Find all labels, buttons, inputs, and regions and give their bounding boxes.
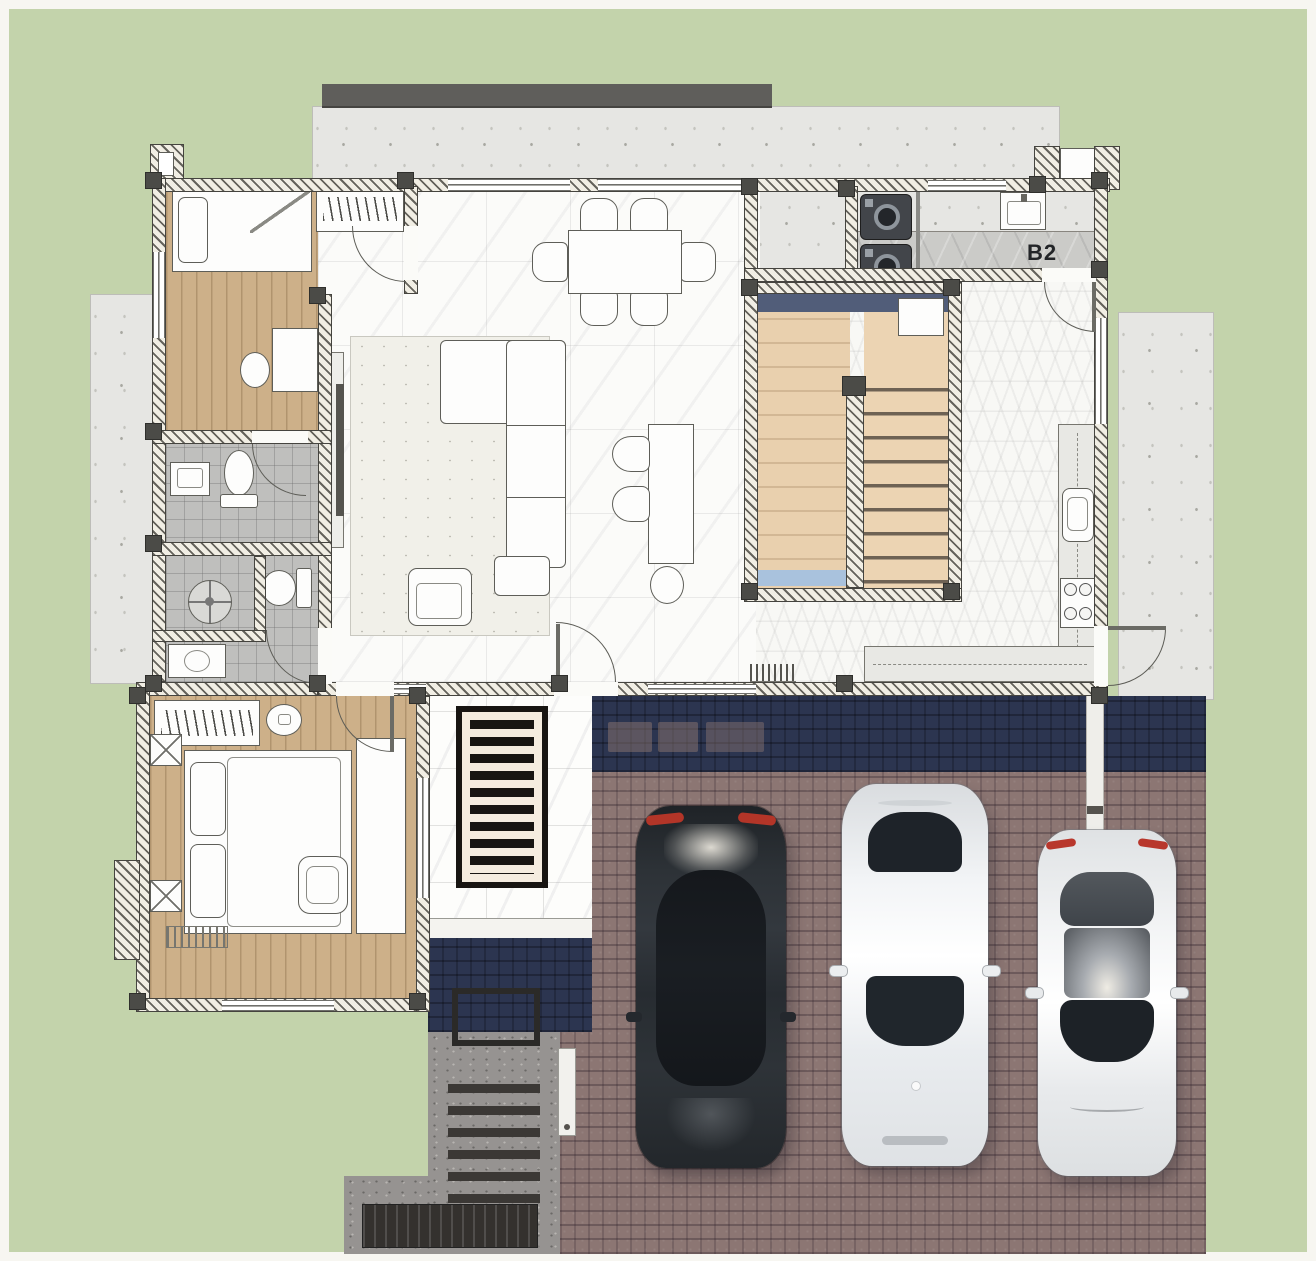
column-post xyxy=(145,423,162,440)
column-post xyxy=(838,180,855,197)
kitchen-sink xyxy=(1062,488,1094,542)
bed2-pillow xyxy=(190,844,226,918)
column-post xyxy=(129,687,146,704)
hood-line xyxy=(1070,1102,1144,1112)
door-gap-kitchen-side xyxy=(1094,626,1108,686)
rear-window xyxy=(868,812,962,872)
desk-chair xyxy=(612,436,650,472)
door-gap-utility xyxy=(1042,268,1096,282)
column-post xyxy=(741,583,758,600)
side-mirror xyxy=(830,966,847,976)
desk-chair xyxy=(612,486,650,522)
stair-newel-post xyxy=(842,376,866,396)
side-mirror xyxy=(1026,988,1043,998)
stair-tread-lines xyxy=(864,388,948,588)
door-leaf-kitchen-side xyxy=(1108,626,1166,630)
column-post xyxy=(1091,172,1108,189)
roof-sheen xyxy=(1064,928,1150,998)
column-post xyxy=(397,172,414,189)
column-post xyxy=(1091,261,1108,278)
column-post xyxy=(309,287,326,304)
dining-table xyxy=(568,230,682,294)
dining-chair xyxy=(630,198,668,234)
bed2-pillow xyxy=(190,762,226,836)
dining-chair xyxy=(630,290,668,326)
roof-edge xyxy=(322,84,772,108)
dining-chair xyxy=(532,242,568,282)
counter-dash-line xyxy=(873,664,1087,665)
car-white-sedan xyxy=(842,784,988,1166)
sink-basin xyxy=(177,468,203,488)
utility-partition xyxy=(916,186,920,268)
nightstand xyxy=(150,880,182,912)
vanity2 xyxy=(168,644,226,678)
kitchen-sink-basin xyxy=(1067,497,1088,531)
dining-chair xyxy=(580,198,618,234)
toilet2-bowl xyxy=(262,570,296,606)
sofa-right-section xyxy=(506,340,566,568)
column-post xyxy=(145,172,162,189)
planter-outline xyxy=(452,988,540,1046)
vanity2-sink xyxy=(184,650,210,672)
utility-sink-basin xyxy=(1007,201,1041,225)
side-mirror xyxy=(983,966,1000,976)
hood-sheen xyxy=(666,1098,756,1152)
ottoman-inner-line xyxy=(416,583,462,619)
door-gap-bedroom1 xyxy=(404,226,418,280)
walkway-post-dot xyxy=(564,1124,570,1130)
stove-burner xyxy=(1079,607,1092,620)
sofa-chaise xyxy=(494,556,550,596)
wall-bedroom2-left xyxy=(136,682,150,1012)
window xyxy=(222,1000,334,1011)
column-post xyxy=(409,993,426,1010)
entry-shoe-grate xyxy=(750,664,796,682)
wall-stair-right xyxy=(948,282,962,600)
column-post xyxy=(1029,176,1046,193)
car-white-hatchback xyxy=(1038,830,1176,1176)
stove-burner xyxy=(1079,583,1092,596)
kitchen-counter-bottom xyxy=(864,646,1096,682)
walkway-post xyxy=(558,1048,576,1136)
column-post xyxy=(741,178,758,195)
door-gap-bathroom1 xyxy=(252,431,308,443)
utility-sink-tap xyxy=(1021,194,1027,202)
toilet1-bowl xyxy=(224,450,254,496)
window xyxy=(598,179,750,191)
window xyxy=(648,684,756,694)
armchair-seat-line xyxy=(306,866,339,904)
door-leaf-bedroom2 xyxy=(390,696,394,752)
gas-stove xyxy=(1060,578,1096,628)
stove-burner xyxy=(1064,607,1077,620)
side-mirror xyxy=(1171,988,1188,998)
shadow-light-patch xyxy=(608,722,652,752)
house-shadow-band xyxy=(560,696,1206,772)
column-post xyxy=(836,675,853,692)
deck-column xyxy=(756,186,846,268)
ottoman-armchair xyxy=(408,568,472,626)
walkway-steps xyxy=(448,1084,540,1210)
shadow-light-patch xyxy=(706,722,764,752)
drain-center xyxy=(205,597,214,606)
counter-dash-line xyxy=(1077,433,1078,673)
window xyxy=(1095,318,1107,424)
column-post xyxy=(943,583,960,600)
shower-drain xyxy=(188,580,232,624)
desk xyxy=(648,424,694,564)
tv xyxy=(336,384,344,516)
window xyxy=(417,778,429,898)
hood-emblem xyxy=(912,1082,920,1090)
column-post xyxy=(145,535,162,552)
wall-bath1-bath2 xyxy=(152,542,332,556)
wardrobe-hanger-strokes xyxy=(161,710,253,736)
kitchen-counter-right xyxy=(1058,424,1096,682)
column-post xyxy=(943,279,960,296)
dining-chair xyxy=(580,290,618,326)
stove-burner xyxy=(1064,583,1077,596)
trunk-sheen xyxy=(664,824,758,876)
wall-bedroom2-stub xyxy=(114,860,140,960)
toilet1-tank xyxy=(220,494,258,508)
stair-left-flight xyxy=(758,294,850,588)
floor-plan-canvas: B2 xyxy=(0,0,1316,1261)
trunk-line xyxy=(878,800,952,806)
door-leaf-utility xyxy=(1092,282,1096,332)
door-gap-bedroom2 xyxy=(336,682,394,696)
column-post xyxy=(129,993,146,1010)
porch-step-edge xyxy=(428,918,592,938)
washing-machine xyxy=(860,194,912,240)
wall-stair-bottom xyxy=(744,588,962,602)
washer-door xyxy=(874,204,900,230)
entry-doormat xyxy=(456,706,548,888)
hallway-stool xyxy=(240,352,270,388)
stair-bottom-strip xyxy=(758,570,850,586)
nightstand xyxy=(150,734,182,766)
column-post xyxy=(1091,687,1108,704)
column-post xyxy=(551,675,568,692)
wall-bedroom2-top xyxy=(136,682,318,696)
washer-panel xyxy=(865,199,873,207)
wall-stair-top xyxy=(744,282,962,294)
stair-mid-wall xyxy=(846,382,864,588)
windshield xyxy=(866,976,964,1046)
rear-glass xyxy=(1060,872,1154,926)
utility-sink xyxy=(1000,192,1046,230)
column-post xyxy=(309,675,326,692)
window xyxy=(928,180,1006,191)
column-post xyxy=(741,279,758,296)
bedroom2-armchair xyxy=(298,856,348,914)
bedroom2-stool xyxy=(266,704,302,736)
side-mirror xyxy=(626,1012,642,1022)
bathroom1-sink xyxy=(170,462,210,496)
wall-bath2-inner-h xyxy=(152,630,266,642)
door-leaf-entry xyxy=(556,624,560,682)
hallway-dresser xyxy=(272,328,318,392)
room-label-b2: B2 xyxy=(1014,240,1070,268)
front-grille xyxy=(882,1136,948,1145)
bedroom2-bench xyxy=(356,738,406,934)
closet-hanger-strokes xyxy=(323,197,397,221)
window xyxy=(153,252,165,338)
upper-deck xyxy=(312,106,1060,180)
walkway-drain-grate xyxy=(362,1204,538,1248)
wall-stair-left xyxy=(744,282,758,600)
column-post xyxy=(145,675,162,692)
washer-panel xyxy=(865,249,873,257)
shadow-light-patch xyxy=(658,722,698,752)
window xyxy=(448,179,570,191)
wall-bath2-inner-v xyxy=(254,556,266,640)
column-post xyxy=(409,687,426,704)
wall-hall-living xyxy=(318,294,332,682)
dining-chair xyxy=(680,242,716,282)
car-dark-sedan xyxy=(636,806,786,1168)
side-mirror xyxy=(780,1012,796,1022)
bed1-sheet-fold xyxy=(250,191,310,233)
bed-foot-rug xyxy=(166,926,228,948)
glass-canopy xyxy=(656,870,766,1086)
doormat-bars xyxy=(470,720,534,874)
stool-detail xyxy=(278,714,291,725)
bed1-pillow xyxy=(178,197,208,263)
kitchen-cabinet xyxy=(898,298,944,336)
desk-stool xyxy=(650,566,684,604)
toilet2-tank xyxy=(296,568,312,608)
